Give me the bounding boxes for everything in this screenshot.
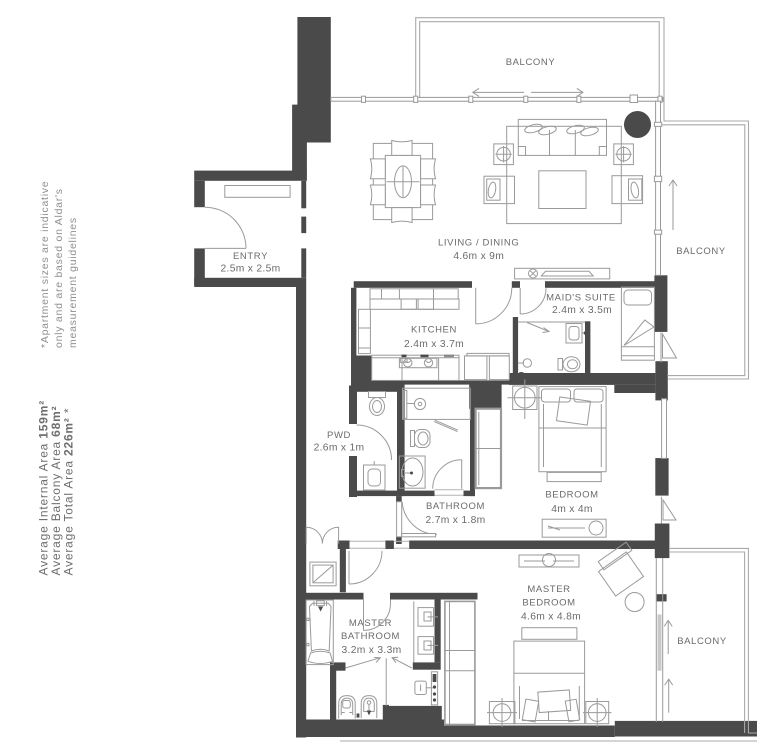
- svg-text:2.7m x 1.8m: 2.7m x 1.8m: [426, 515, 486, 526]
- svg-text:*Apartment sizes are indicativ: *Apartment sizes are indicative: [39, 181, 51, 348]
- svg-text:MASTER: MASTER: [527, 584, 570, 595]
- svg-text:BALCONY: BALCONY: [676, 246, 726, 257]
- svg-text:2.6m x 1m: 2.6m x 1m: [314, 443, 365, 454]
- svg-text:BEDROOM: BEDROOM: [522, 598, 575, 609]
- svg-text:ENTRY: ENTRY: [233, 251, 268, 262]
- svg-text:2.5m x 2.5m: 2.5m x 2.5m: [221, 264, 281, 275]
- svg-text:LIVING / DINING: LIVING / DINING: [438, 238, 519, 249]
- svg-text:3.2m x 3.3m: 3.2m x 3.3m: [342, 645, 402, 656]
- svg-text:BALCONY: BALCONY: [506, 57, 556, 68]
- svg-text:PWD: PWD: [327, 430, 351, 441]
- svg-text:4.6m x 4.8m: 4.6m x 4.8m: [521, 612, 581, 623]
- svg-text:KITCHEN: KITCHEN: [411, 325, 457, 336]
- svg-text:4.6m x 9m: 4.6m x 9m: [453, 251, 504, 262]
- svg-text:2.4m x 3.5m: 2.4m x 3.5m: [552, 305, 612, 316]
- svg-text:2.4m x 3.7m: 2.4m x 3.7m: [404, 339, 464, 350]
- svg-text:BATHROOM: BATHROOM: [426, 501, 485, 512]
- svg-text:only and are based on Aldar's: only and are based on Aldar's: [53, 188, 65, 348]
- svg-text:Average Total Area 226m² *: Average Total Area 226m² *: [62, 408, 76, 576]
- svg-text:MAID'S SUITE: MAID'S SUITE: [546, 293, 616, 304]
- svg-text:BEDROOM: BEDROOM: [545, 490, 598, 501]
- svg-text:BATHROOM: BATHROOM: [341, 631, 400, 642]
- svg-text:measurement guidelines: measurement guidelines: [67, 217, 79, 348]
- svg-text:BALCONY: BALCONY: [677, 636, 727, 647]
- svg-text:4m x 4m: 4m x 4m: [551, 504, 593, 515]
